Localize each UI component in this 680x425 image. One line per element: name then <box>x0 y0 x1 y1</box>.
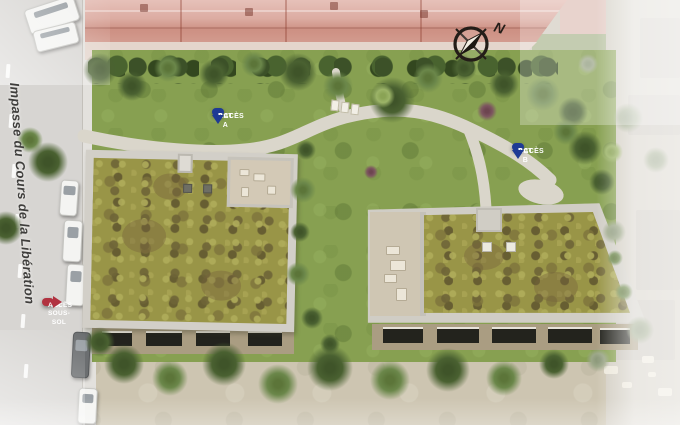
terrace-furniture <box>241 187 249 197</box>
roof-access <box>177 154 192 173</box>
tree <box>307 345 353 391</box>
roof-patch <box>534 272 578 302</box>
map-pin-acces-bat-a[interactable]: ACCÈS BAT A <box>212 108 224 116</box>
tree <box>290 177 316 203</box>
tree <box>371 84 395 108</box>
map-pin-acces-parking[interactable]: ACCÈS P. SOUS-SOL <box>42 298 54 306</box>
terrace-furniture <box>386 246 400 255</box>
tree <box>413 63 443 93</box>
map-pin-acces-bat-b[interactable]: ACCÈS BAT B <box>512 143 524 151</box>
tree <box>154 54 182 82</box>
tree <box>296 140 316 160</box>
roof-patch <box>201 270 242 301</box>
tree <box>290 222 310 242</box>
roof-vent <box>203 184 212 193</box>
tree <box>626 316 654 344</box>
tree <box>202 342 246 386</box>
tree <box>364 165 378 179</box>
tree <box>553 119 579 145</box>
building-b <box>360 198 652 330</box>
tree <box>199 59 229 89</box>
terrace-furniture <box>390 260 406 271</box>
terrace-furniture <box>267 186 276 195</box>
car-windshield <box>64 186 76 196</box>
tree <box>426 348 470 392</box>
tree <box>323 71 353 101</box>
tree <box>477 101 497 121</box>
compass-icon: N <box>444 14 508 72</box>
terrace-furniture <box>396 288 407 301</box>
tree <box>602 220 626 244</box>
skylight <box>482 242 492 252</box>
tree <box>615 283 633 301</box>
tree <box>489 69 519 99</box>
car-windshield <box>70 271 82 282</box>
tree <box>586 348 610 372</box>
compass-north-label: N <box>492 19 507 38</box>
tree <box>370 360 410 400</box>
terrace-furniture <box>253 173 265 181</box>
car-windshield <box>40 27 70 39</box>
sun-lounger <box>340 102 349 114</box>
tree <box>241 51 267 77</box>
building-a <box>82 148 302 336</box>
tree <box>601 141 623 163</box>
pin-label-line: BAT A <box>218 112 233 130</box>
pin-label-line: P. SOUS-SOL <box>48 302 70 327</box>
terrace-furniture <box>239 169 249 176</box>
pin-label-line: BAT B <box>518 147 533 165</box>
tree <box>286 262 310 286</box>
tree <box>526 77 560 111</box>
tree <box>486 360 522 396</box>
car-windshield <box>67 227 79 238</box>
parked-car <box>62 220 83 263</box>
roof-patch <box>122 219 167 254</box>
tree <box>539 349 569 379</box>
residence-site-plan: ACCÈS BAT A ACCÈS BAT B ACCÈS P. SOUS-SO… <box>0 0 680 425</box>
roof-access <box>476 208 502 232</box>
parked-car <box>77 388 98 425</box>
sun-lounger <box>330 100 339 112</box>
tree <box>83 53 117 87</box>
tree <box>117 71 147 101</box>
tree <box>279 53 317 91</box>
tree <box>301 307 323 329</box>
tree <box>607 250 623 266</box>
tree <box>104 344 144 384</box>
building-a-roof-terrace <box>227 157 294 208</box>
car-windshield <box>82 394 94 403</box>
tree <box>643 147 669 173</box>
tree <box>152 360 188 396</box>
terrace-furniture <box>384 274 397 283</box>
skylight <box>506 242 516 252</box>
sun-lounger <box>350 104 359 116</box>
tree <box>258 364 298 404</box>
roof-vent <box>183 184 192 193</box>
tree <box>613 103 643 133</box>
tree <box>578 54 598 74</box>
tree <box>589 169 615 195</box>
parked-car <box>59 179 79 216</box>
